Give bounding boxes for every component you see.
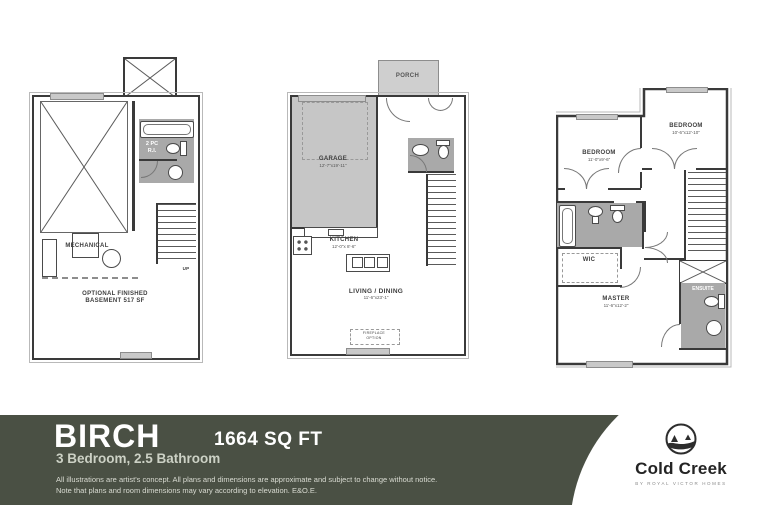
- optional-basement-line1: OPTIONAL FINISHED: [82, 291, 148, 297]
- ensuite-toilet-icon: [704, 296, 719, 307]
- basement-window: [50, 93, 104, 100]
- kitchen-name: KITCHEN: [330, 237, 359, 243]
- garage-door: [298, 95, 366, 102]
- garage-label: GARAGE 12'-7"x19'-11": [300, 156, 366, 169]
- bedroom3-dim: 10'-6"x12'-10": [650, 130, 722, 136]
- laundry-sink-icon: [168, 165, 183, 180]
- stairs-main: [426, 174, 456, 266]
- ensuite-sink-icon: [706, 320, 722, 336]
- kitchen-label: KITCHEN 12'-0"x 8'-6": [314, 237, 374, 250]
- powder-sink-icon: [412, 144, 429, 156]
- island-seat-2: [364, 257, 375, 268]
- porch-label: PORCH: [378, 73, 437, 80]
- bedroom2-wall-b: [608, 188, 641, 190]
- bedroom2-right-wall-b: [640, 172, 642, 188]
- disclaimer-line2: Note that plans and room dimensions may …: [56, 486, 317, 495]
- wic-label: WIC: [562, 257, 616, 264]
- master-dim: 11'-6"x12'-2": [571, 303, 661, 309]
- bathtub: [140, 121, 194, 138]
- toilet-tank-icon: [180, 141, 187, 156]
- mechanical-hatch: [42, 277, 138, 279]
- builder-logo: Cold Creek BY ROYAL VICTOR HOMES: [622, 421, 740, 486]
- wic-top-wall: [557, 247, 622, 249]
- master-window: [586, 361, 633, 368]
- optional-basement-label: OPTIONAL FINISHED BASEMENT 517 SF: [40, 291, 190, 305]
- bedroom2-name: BEDROOM: [582, 150, 615, 156]
- ensuite: [681, 283, 725, 348]
- bath-label-2: R.I.: [140, 148, 164, 154]
- fireplace-line2: OPTION: [366, 336, 381, 340]
- plan-name-title: BIRCH: [54, 418, 160, 455]
- builder-name: Cold Creek: [622, 459, 740, 479]
- hwt-round-icon: [102, 249, 121, 268]
- ensuite-bottom-wall: [679, 348, 726, 350]
- wic-right-wall: [620, 247, 622, 269]
- optional-basement-line2: BASEMENT 517 SF: [85, 298, 144, 304]
- main-floor-plan: PORCH GARAGE 12'-7"x19'-11" KITCHEN 12'-…: [290, 60, 468, 356]
- disclaimer-line1: All illustrations are artist's concept. …: [56, 475, 437, 484]
- unexcavated-area: [40, 101, 128, 233]
- ensuite-left-wall: [679, 282, 681, 324]
- fireplace-option-label: FIREPLACE OPTION: [350, 331, 398, 340]
- interior-wall: [132, 101, 135, 231]
- disclaimer-text: All illustrations are artist's concept. …: [56, 474, 437, 496]
- stair-wall: [684, 170, 686, 258]
- bedroom2-window: [576, 114, 618, 120]
- fireplace-line1: FIREPLACE: [363, 331, 385, 335]
- floorplan-sheet: 2 PC R.I. UP MECHANICAL OPTIONAL FINISHE…: [0, 0, 760, 505]
- ensuite-toilet-tank: [718, 294, 725, 309]
- bedroom3-wall-b: [696, 168, 727, 170]
- toilet-icon: [166, 143, 180, 154]
- bedroom2-right-wall: [640, 116, 642, 148]
- builder-tagline: BY ROYAL VICTOR HOMES: [622, 481, 740, 486]
- powder-toilet-icon: [438, 145, 449, 159]
- main-bath-tub: [559, 205, 576, 247]
- basement-plan: 2 PC R.I. UP MECHANICAL OPTIONAL FINISHE…: [32, 57, 202, 362]
- living-dining-dim: 11'-6"x23'-1": [316, 295, 436, 301]
- window-well-box: [123, 57, 177, 99]
- main-bath-toilet-icon: [612, 210, 623, 223]
- stairs-up: [156, 203, 196, 264]
- bath-label: 2 PC: [140, 141, 164, 147]
- garage-name: GARAGE: [319, 156, 347, 162]
- island-seat-1: [352, 257, 363, 268]
- master-name: MASTER: [602, 296, 629, 302]
- ensuite-shower: [679, 260, 727, 284]
- island-sink-icon: [377, 257, 388, 268]
- square-footage: 1664 SQ FT: [214, 429, 323, 451]
- kitchen-dim: 12'-0"x 8'-6": [314, 244, 374, 250]
- stove-icon: [293, 236, 312, 255]
- wic-bottom-wall: [557, 285, 622, 287]
- upper-floor-plan: BEDROOM 11'-0"x9'-6" BEDROOM 10'-6"x12'-…: [556, 88, 734, 368]
- kitchen-sink-icon: [328, 229, 344, 236]
- bedroom3-wall: [642, 168, 652, 170]
- living-window: [346, 348, 390, 355]
- master-entry-wall: [644, 201, 646, 232]
- cold-creek-logo-icon: [658, 421, 704, 459]
- master-label: MASTER 11'-6"x12'-2": [571, 296, 661, 309]
- ensuite-label: ENSUITE: [681, 286, 725, 292]
- bedroom3-window: [666, 87, 708, 93]
- mechanical-label: MECHANICAL: [50, 243, 124, 250]
- garage-dim: 12'-7"x19'-11": [300, 163, 366, 169]
- garage-parking-outline: [302, 102, 368, 160]
- basement-bottom-window: [120, 352, 152, 359]
- bed-bath-subtitle: 3 Bedroom, 2.5 Bathroom: [56, 451, 220, 466]
- living-dining-name: LIVING / DINING: [349, 288, 403, 295]
- bedroom3-label: BEDROOM 10'-6"x12'-10": [650, 123, 722, 136]
- main-bath-sink-pedestal: [592, 216, 599, 224]
- stairs-up-label: UP: [178, 265, 194, 272]
- living-dining-label: LIVING / DINING 11'-6"x23'-1": [316, 288, 436, 301]
- bedroom3-name: BEDROOM: [669, 123, 702, 129]
- stairs-upper: [688, 172, 726, 256]
